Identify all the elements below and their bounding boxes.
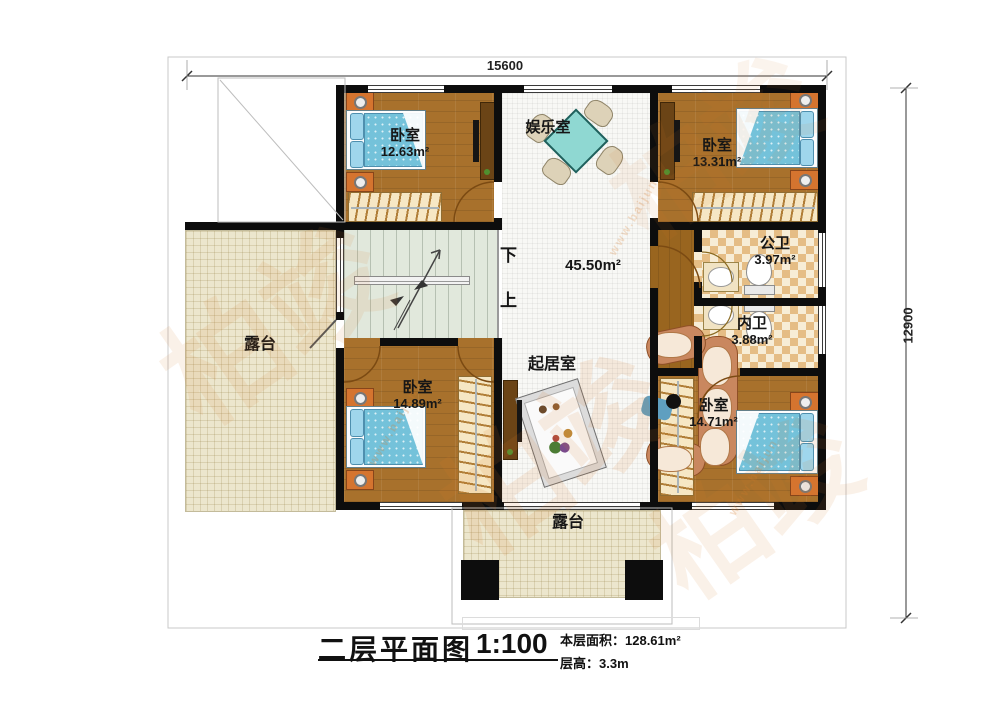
floor-terrace-left (185, 230, 336, 512)
wall-segment (336, 348, 344, 510)
wall-segment (380, 338, 458, 346)
wall-segment (650, 368, 698, 376)
wall-segment (650, 93, 658, 182)
floor-height-label: 层高：3.3m (560, 653, 629, 672)
bed (346, 406, 426, 468)
pillow (350, 409, 364, 436)
nightstand (346, 92, 374, 112)
room-label-bedroom-top-right: 卧室 13.31m² (672, 138, 762, 169)
wall-segment (694, 336, 702, 368)
room-label-living: 起居室 (512, 356, 592, 374)
room-name: 卧室 (698, 397, 728, 414)
wall-segment (185, 222, 336, 230)
dimension-right: 12900 (901, 290, 916, 362)
terrace-column (625, 560, 663, 600)
room-area: 45.50m² (565, 257, 621, 274)
room-label-public-bath: 公卫 3.97m² (735, 236, 815, 267)
stair-handrail (354, 276, 470, 285)
floor-area-label: 本层面积：128.61m² (560, 630, 681, 649)
floor-terrace-door-gap (336, 320, 344, 348)
stair-up-label: 上 (500, 286, 517, 311)
sofa-cushion (700, 428, 730, 466)
wall-segment (818, 93, 826, 233)
wall-segment (818, 354, 826, 510)
wall-segment (694, 230, 702, 252)
wall-segment (336, 93, 344, 238)
floor-plan-canvas: 卧室 12.63m² 娱乐室 卧室 13.31m² 公卫 3.97m² 内卫 3… (0, 0, 1000, 706)
terrace-column (461, 560, 499, 600)
room-label-bedroom-top-left: 卧室 12.63m² (360, 128, 450, 159)
wall-segment (640, 502, 692, 510)
tv-cabinet (480, 102, 495, 180)
nightstand (790, 392, 820, 412)
wall-segment (494, 338, 502, 346)
pillow (800, 139, 814, 165)
nightstand (790, 476, 820, 496)
tv-icon (517, 400, 522, 442)
nightstand (790, 170, 820, 190)
wall-segment (650, 288, 658, 376)
window (380, 502, 462, 510)
pillow (800, 111, 814, 137)
dimension-top: 15600 (450, 58, 560, 73)
pillow (350, 438, 364, 465)
room-name: 露台 (244, 336, 276, 353)
window (672, 85, 760, 93)
stair-railing (497, 230, 499, 338)
window (336, 238, 344, 312)
room-area: 13.31m² (672, 155, 762, 170)
wardrobe (692, 192, 818, 222)
room-name: 卧室 (390, 127, 420, 144)
room-name: 卧室 (702, 137, 732, 154)
toilet-tank (744, 285, 775, 295)
wall-segment (650, 222, 826, 230)
pillow (800, 443, 814, 471)
wall-segment (650, 230, 658, 246)
window (818, 233, 826, 287)
wall-segment (336, 222, 502, 230)
sink-icon (703, 262, 739, 292)
wall-segment (336, 502, 380, 510)
wall-segment (694, 298, 826, 306)
room-label-entertainment: 娱乐室 (508, 120, 588, 137)
wall-segment (774, 502, 826, 510)
wall-segment (494, 93, 502, 182)
nightstand (346, 172, 374, 192)
window (524, 85, 612, 93)
room-name: 起居室 (528, 356, 576, 373)
plan-title: 二层平面图 (318, 628, 473, 668)
room-area: 14.71m² (666, 415, 761, 430)
room-name: 娱乐室 (525, 119, 570, 136)
wall-segment (650, 376, 658, 510)
hall-area-label: 45.50m² (548, 258, 638, 275)
floor-corridor-door-gap (650, 246, 658, 288)
room-name: 公卫 (760, 235, 790, 252)
window (368, 85, 444, 93)
room-label-terrace-bottom: 露台 (532, 514, 604, 532)
room-area: 12.63m² (360, 145, 450, 160)
wall-segment (336, 312, 344, 320)
stair-down-label: 下 (500, 241, 517, 266)
room-area: 14.89m² (370, 397, 465, 412)
tv-cabinet (503, 380, 518, 460)
room-name: 内卫 (737, 315, 767, 332)
wall-segment (740, 368, 826, 376)
window (818, 306, 826, 354)
wall-segment (494, 346, 502, 510)
pillow (800, 413, 814, 441)
room-label-bedroom-bottom-right: 卧室 14.71m² (666, 398, 761, 429)
room-name: 卧室 (402, 379, 432, 396)
floor-bath-door-gap (694, 252, 702, 282)
wardrobe (348, 192, 442, 222)
sliding-door (504, 502, 640, 510)
window (692, 502, 774, 510)
title-divider-line (318, 659, 558, 661)
nightstand (790, 90, 820, 110)
bed-sheet-fold (403, 409, 423, 465)
sofa-cushion (702, 346, 732, 386)
plan-scale: 1:100 (476, 628, 548, 660)
room-label-terrace-left: 露台 (224, 336, 296, 354)
room-label-private-bath: 内卫 3.88m² (712, 316, 792, 347)
room-label-bedroom-bottom-left: 卧室 14.89m² (370, 380, 465, 411)
tv-icon (473, 120, 479, 162)
room-name: 露台 (552, 514, 584, 531)
nightstand (346, 470, 374, 490)
room-area: 3.97m² (735, 253, 815, 268)
room-area: 3.88m² (712, 333, 792, 348)
